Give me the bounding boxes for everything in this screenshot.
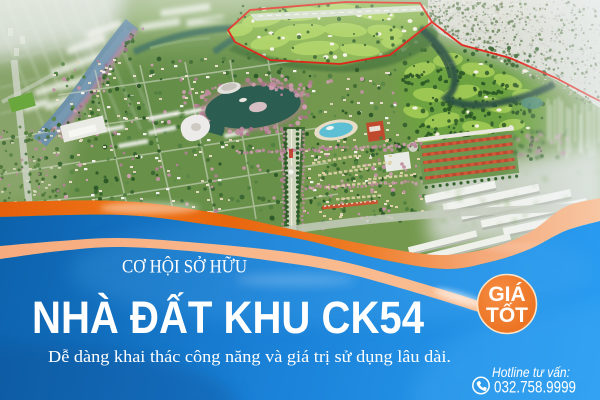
svg-text:GIÁ: GIÁ xyxy=(488,283,525,306)
svg-text:NHÀ ĐẤT KHU CK54: NHÀ ĐẤT KHU CK54 xyxy=(32,291,425,343)
svg-text:CƠ HỘI SỞ HỮU: CƠ HỘI SỞ HỮU xyxy=(122,256,247,278)
svg-text:TỐT: TỐT xyxy=(486,303,528,327)
svg-text:Dễ dàng khai thác công năng và: Dễ dàng khai thác công năng và giá trị s… xyxy=(48,347,451,366)
svg-text:032.758.9999: 032.758.9999 xyxy=(494,379,576,397)
